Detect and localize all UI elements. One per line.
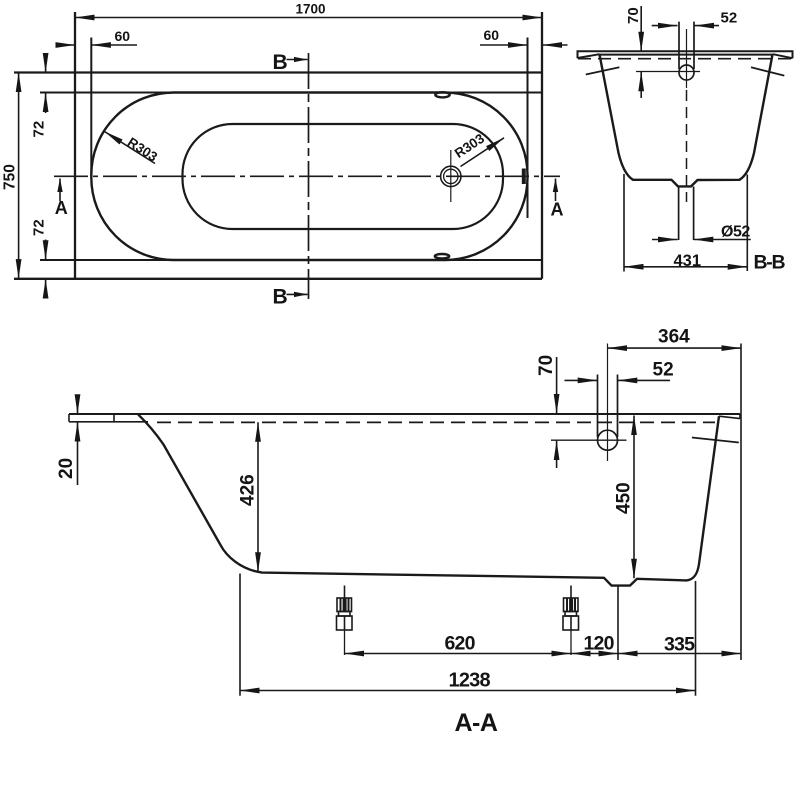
svg-text:52: 52 [653, 360, 674, 381]
svg-text:R303: R303 [125, 134, 161, 164]
svg-text:335: 335 [664, 634, 695, 656]
svg-text:Ø52: Ø52 [721, 224, 750, 241]
svg-text:72: 72 [31, 121, 48, 138]
svg-text:A-A: A-A [455, 709, 498, 737]
svg-text:70: 70 [536, 355, 557, 376]
svg-text:364: 364 [658, 326, 690, 347]
svg-text:426: 426 [238, 474, 259, 506]
svg-text:B: B [273, 286, 288, 309]
svg-text:A: A [55, 198, 68, 218]
svg-text:70: 70 [625, 7, 642, 24]
svg-text:60: 60 [484, 27, 500, 43]
svg-text:20: 20 [56, 458, 77, 479]
svg-text:A: A [551, 200, 564, 220]
svg-text:B-B: B-B [754, 252, 786, 274]
svg-text:1238: 1238 [449, 670, 491, 692]
svg-text:750: 750 [2, 164, 19, 190]
svg-text:450: 450 [614, 482, 635, 514]
svg-text:120: 120 [584, 633, 615, 655]
svg-text:1700: 1700 [296, 2, 326, 17]
svg-text:620: 620 [445, 633, 476, 655]
svg-text:R303: R303 [452, 130, 488, 161]
svg-text:431: 431 [674, 252, 702, 270]
svg-text:72: 72 [31, 219, 48, 236]
svg-text:B: B [273, 51, 288, 74]
svg-text:52: 52 [721, 9, 738, 26]
svg-text:60: 60 [115, 28, 131, 44]
